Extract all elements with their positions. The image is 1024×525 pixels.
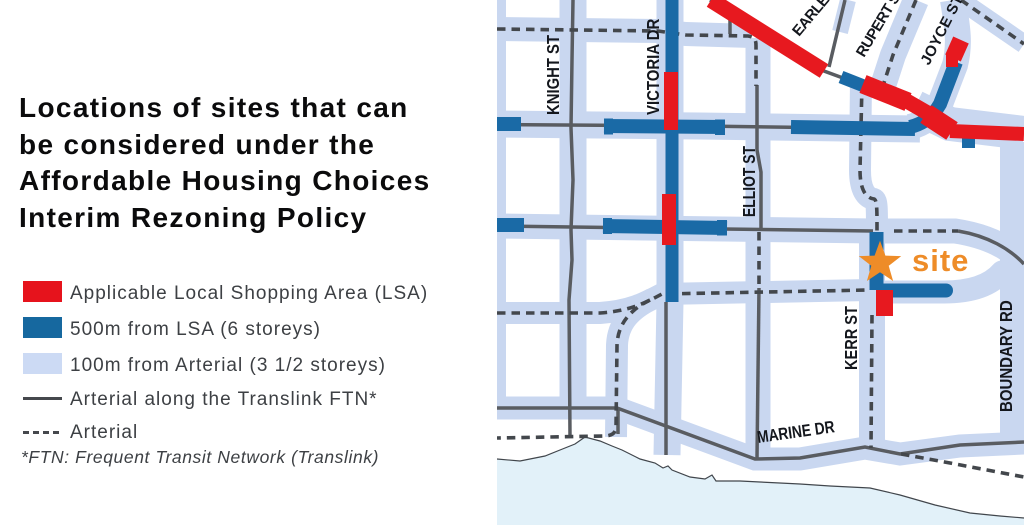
svg-text:ELLIOT ST: ELLIOT ST [739, 146, 759, 217]
svg-text:KNIGHT ST: KNIGHT ST [544, 35, 564, 115]
svg-text:KERR ST: KERR ST [842, 306, 862, 370]
svg-text:VICTORIA DR: VICTORIA DR [643, 19, 664, 115]
svg-text:site: site [912, 243, 969, 278]
svg-text:BOUNDARY RD: BOUNDARY RD [996, 300, 1017, 412]
